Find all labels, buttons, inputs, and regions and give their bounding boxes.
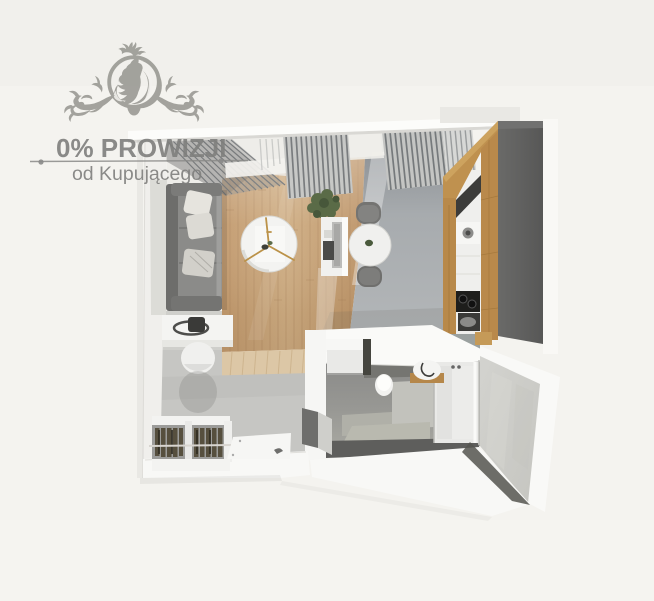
svg-text:0% PROWIZJI: 0% PROWIZJI [56,133,226,163]
svg-text:od Kupującego: od Kupującego [72,163,202,185]
